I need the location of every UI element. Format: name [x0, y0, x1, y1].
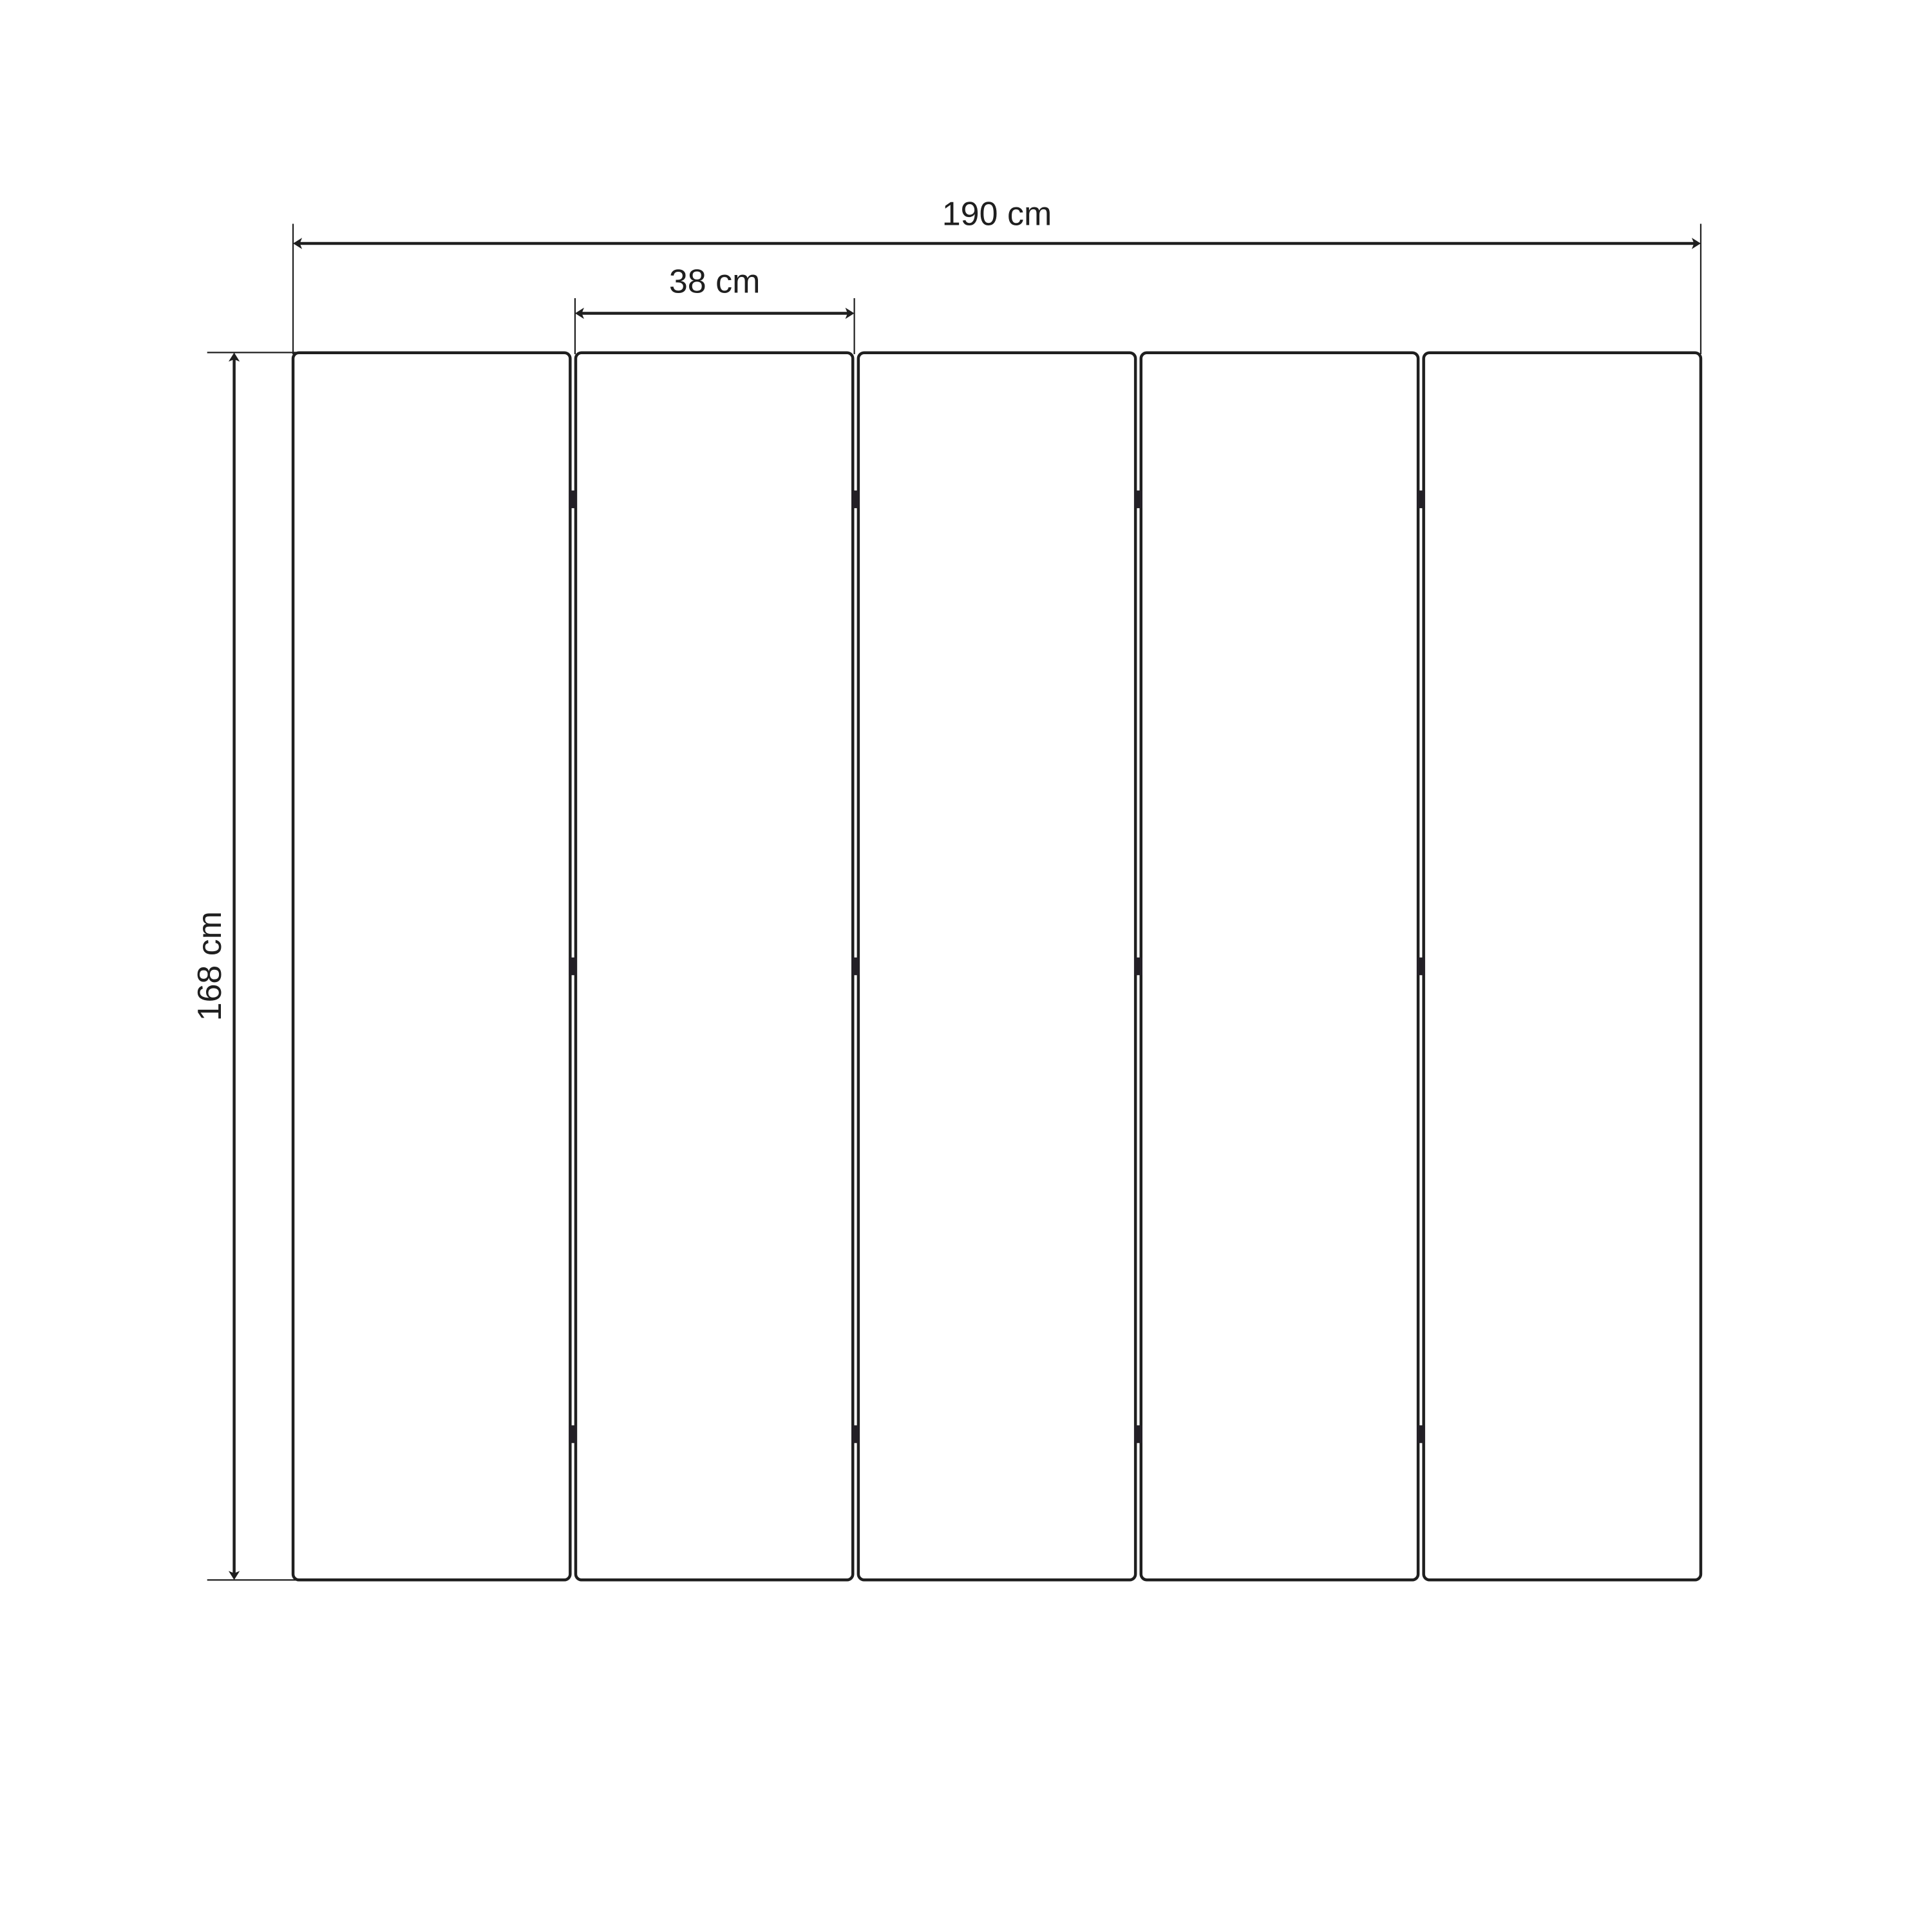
svg-text:168 cm: 168 cm	[191, 911, 229, 1021]
svg-text:38 cm: 38 cm	[669, 263, 761, 301]
svg-text:190 cm: 190 cm	[942, 196, 1052, 233]
